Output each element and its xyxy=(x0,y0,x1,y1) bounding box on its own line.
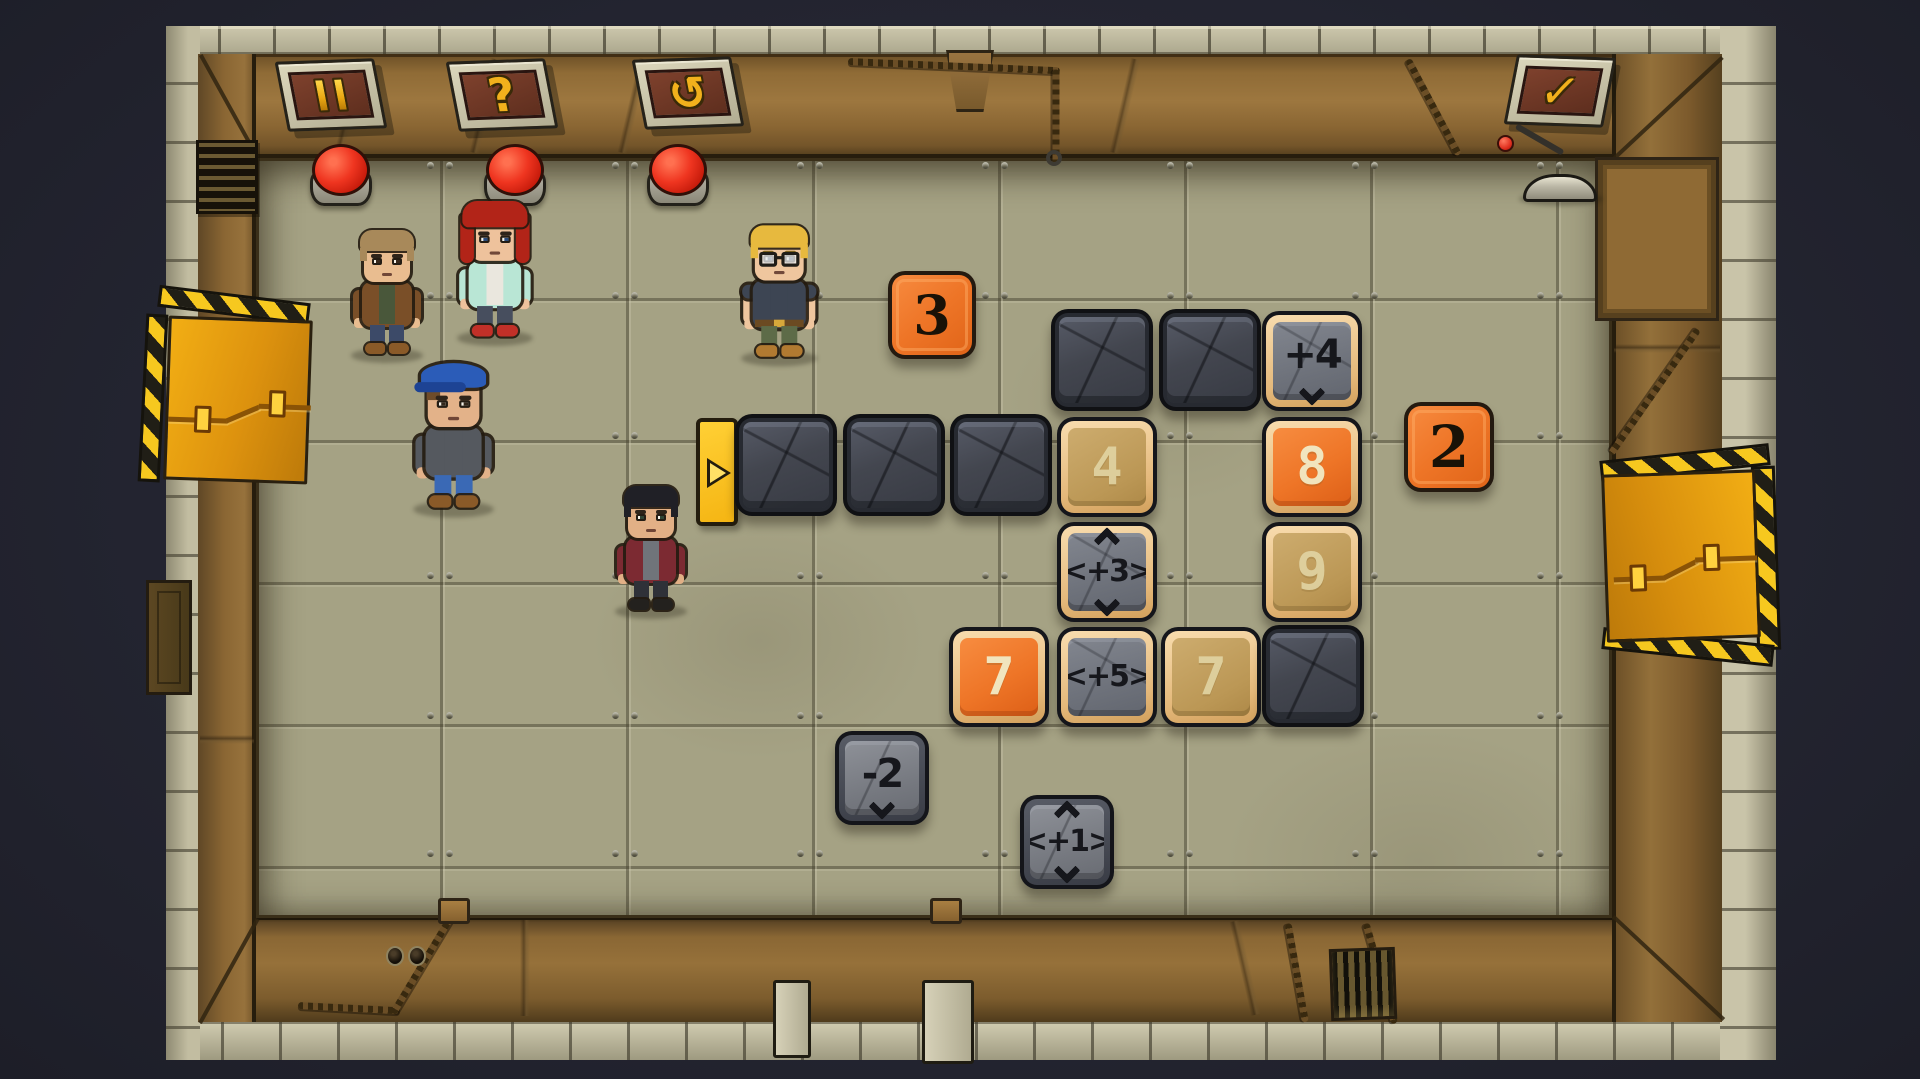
shoe xyxy=(653,599,673,610)
rivet xyxy=(1537,850,1544,857)
sideburn xyxy=(751,244,758,258)
tile-face xyxy=(1167,317,1253,403)
rivet xyxy=(1371,850,1378,857)
rivet xyxy=(1186,850,1193,857)
shirt xyxy=(379,285,395,324)
wall-seam xyxy=(520,920,530,1016)
door-left-panel xyxy=(163,316,313,485)
eye xyxy=(372,258,382,265)
pause-button[interactable] xyxy=(275,58,388,131)
rivet xyxy=(1352,162,1359,169)
rivet xyxy=(1537,292,1544,299)
sideburn xyxy=(624,504,631,517)
rivet xyxy=(446,292,453,299)
rivet xyxy=(612,292,619,299)
mouth xyxy=(448,417,459,420)
red-button-dome xyxy=(649,144,707,196)
tile-face xyxy=(851,422,937,508)
shoe xyxy=(497,325,518,337)
rivet xyxy=(1186,432,1193,439)
door-latch xyxy=(225,405,260,424)
block-2[interactable] xyxy=(1159,309,1261,411)
mouth xyxy=(774,271,785,274)
hair xyxy=(624,486,678,507)
rivet xyxy=(1186,162,1193,169)
rivet xyxy=(427,162,434,169)
rivet xyxy=(1001,292,1008,299)
hair xyxy=(462,201,527,227)
wall-button-3[interactable] xyxy=(645,144,711,208)
eye xyxy=(656,514,666,521)
rivet xyxy=(1556,572,1563,579)
tile-minus2[interactable]: -2 xyxy=(835,731,929,825)
tile-label: 2 xyxy=(1429,418,1469,476)
shoe xyxy=(472,325,493,337)
block-4[interactable] xyxy=(843,414,945,516)
block-3[interactable] xyxy=(735,414,837,516)
door-left xyxy=(142,290,314,492)
right-wall-frame-panel xyxy=(1598,160,1716,318)
rivet xyxy=(1001,572,1008,579)
door-buckle xyxy=(1703,544,1721,572)
rivet xyxy=(631,292,638,299)
rivet xyxy=(612,850,619,857)
tile-face: 9 xyxy=(1273,533,1351,611)
rivet xyxy=(1352,850,1359,857)
rivet xyxy=(1352,292,1359,299)
mouth xyxy=(490,251,501,254)
rivet xyxy=(982,850,989,857)
tile-7-tan[interactable]: 7 xyxy=(1161,627,1261,727)
tile-face: 7 xyxy=(1172,638,1250,716)
wall-seam xyxy=(200,735,254,744)
rivet xyxy=(427,850,434,857)
tile-face: <+5> xyxy=(1068,638,1146,716)
rivet xyxy=(631,850,638,857)
rivet xyxy=(1537,432,1544,439)
rivet xyxy=(1556,850,1563,857)
character-shadow xyxy=(741,350,817,366)
tile-label: <+5> xyxy=(1068,662,1146,692)
man-brown-jacket[interactable] xyxy=(349,224,425,362)
tile-plus3[interactable]: <+3> xyxy=(1057,522,1157,622)
shirt xyxy=(445,430,463,474)
wall-button-1[interactable] xyxy=(308,144,374,208)
woman-red-hair[interactable] xyxy=(455,200,535,345)
rivet xyxy=(797,162,804,169)
wall-pillar xyxy=(773,980,811,1058)
tile-face: 4 xyxy=(1068,428,1146,506)
tile-face xyxy=(1059,317,1145,403)
tile-face xyxy=(958,422,1044,508)
tile-plus5[interactable]: <+5> xyxy=(1057,627,1157,727)
tile-label: 7 xyxy=(1195,651,1226,703)
sideburn xyxy=(407,248,414,261)
shoe xyxy=(429,495,451,507)
rivet xyxy=(446,850,453,857)
rivet xyxy=(816,162,823,169)
bolt-hole xyxy=(386,946,404,966)
shirt xyxy=(643,541,659,580)
tile-label: 4 xyxy=(1091,441,1122,493)
block-1[interactable] xyxy=(1051,309,1153,411)
character-shadow xyxy=(413,501,494,518)
rivet xyxy=(446,712,453,719)
rivet xyxy=(446,162,453,169)
sideburn xyxy=(800,244,807,258)
tile-label: -2 xyxy=(845,754,919,794)
tile-face xyxy=(743,422,829,508)
rivet xyxy=(427,292,434,299)
pause-icon xyxy=(288,70,375,121)
shoe xyxy=(781,345,802,357)
block-5[interactable] xyxy=(950,414,1052,516)
rivet xyxy=(1556,292,1563,299)
glasses-bridge xyxy=(776,256,783,259)
rivet xyxy=(427,572,434,579)
glasses xyxy=(781,252,799,267)
cap-brim xyxy=(414,382,466,392)
sideburn xyxy=(671,504,678,517)
red-button-dome xyxy=(312,144,370,196)
rivet xyxy=(612,432,619,439)
checkmark-glyph: ✓ xyxy=(1536,67,1583,114)
rivet xyxy=(1001,162,1008,169)
lever[interactable] xyxy=(1495,134,1607,208)
wall-post xyxy=(930,898,962,924)
rope-hook xyxy=(1046,150,1062,166)
restart-icon: ↺ xyxy=(645,68,732,119)
tile-face xyxy=(1270,633,1356,719)
shoe xyxy=(629,599,649,610)
tile-label: <+3> xyxy=(1068,557,1146,587)
rivet xyxy=(1001,850,1008,857)
rivet xyxy=(1167,572,1174,579)
rivet xyxy=(816,850,823,857)
rivet xyxy=(1537,712,1544,719)
hair xyxy=(751,225,808,247)
tile-label: 3 xyxy=(913,288,951,342)
block-6[interactable] xyxy=(1262,625,1364,727)
vent-grille-bottom-right xyxy=(1329,947,1397,1021)
man-red-jacket[interactable] xyxy=(613,480,689,618)
rivet xyxy=(982,292,989,299)
tile-face: 7 xyxy=(960,638,1038,716)
rivet xyxy=(982,572,989,579)
shirt xyxy=(487,264,504,305)
character-shadow xyxy=(457,330,533,346)
game-stage: ? ↺ ✓ 32+448<+3>97<+5>7-2<+1> xyxy=(0,0,1920,1079)
shoe xyxy=(389,343,409,354)
eye xyxy=(636,514,646,521)
rivet xyxy=(1371,162,1378,169)
wall-seam xyxy=(1614,344,1720,353)
help-icon: ? xyxy=(459,70,546,121)
mouth xyxy=(382,273,392,276)
rivet xyxy=(1371,432,1378,439)
eye xyxy=(500,236,511,243)
character-shadow xyxy=(351,348,423,363)
door-buckle xyxy=(268,390,286,418)
lever-base xyxy=(1523,174,1597,202)
lever-ball xyxy=(1497,135,1514,152)
character-shadow xyxy=(615,604,687,619)
hair xyxy=(360,230,414,251)
red-button-dome xyxy=(486,144,544,196)
stone-frame-left xyxy=(166,26,200,1060)
eye xyxy=(392,258,402,265)
door-right-panel xyxy=(1601,469,1761,642)
rivet xyxy=(1371,572,1378,579)
tile-face: 8 xyxy=(1273,428,1351,506)
tile-label: +4 xyxy=(1273,335,1351,375)
shoe xyxy=(756,345,777,357)
rivet xyxy=(816,712,823,719)
rivet xyxy=(631,162,638,169)
rivet xyxy=(427,712,434,719)
tile-3[interactable]: 3 xyxy=(888,271,976,359)
door-latch xyxy=(1663,559,1699,581)
rivet xyxy=(631,712,638,719)
rivet xyxy=(1167,850,1174,857)
tile-face: 3 xyxy=(896,279,968,351)
left-wall-hatch xyxy=(146,580,192,695)
wall-pillar xyxy=(922,980,974,1064)
tile-plus4[interactable]: +4 xyxy=(1262,311,1362,411)
shoe xyxy=(456,495,478,507)
door-buckle xyxy=(1629,564,1647,592)
tile-label: 7 xyxy=(983,651,1014,703)
restart-arrow-glyph: ↺ xyxy=(664,69,711,116)
eye xyxy=(479,236,490,243)
tile-2[interactable]: 2 xyxy=(1404,402,1494,492)
rivet xyxy=(1371,712,1378,719)
rivet xyxy=(612,162,619,169)
rivet xyxy=(1167,162,1174,169)
help-button[interactable]: ? xyxy=(446,58,559,131)
rivet xyxy=(631,432,638,439)
shoe xyxy=(365,343,385,354)
rivet xyxy=(1371,292,1378,299)
tile-plus1[interactable]: <+1> xyxy=(1020,795,1114,889)
sideburn xyxy=(360,248,367,261)
rivet xyxy=(612,712,619,719)
rivet xyxy=(1167,432,1174,439)
door-right xyxy=(1596,450,1780,666)
rivet xyxy=(1167,292,1174,299)
rivet xyxy=(1186,572,1193,579)
vent-grille-top-left xyxy=(196,140,258,214)
tile-9[interactable]: 9 xyxy=(1262,522,1362,622)
tile-label: <+1> xyxy=(1030,827,1104,857)
rivet xyxy=(797,712,804,719)
confirm-button[interactable]: ✓ xyxy=(1504,54,1617,127)
eye xyxy=(437,400,448,408)
rivet xyxy=(1186,292,1193,299)
eye xyxy=(459,400,470,408)
glasses xyxy=(759,252,777,267)
wall-post xyxy=(438,898,470,924)
tile-label: 9 xyxy=(1296,546,1327,598)
rivet xyxy=(1556,432,1563,439)
door-buckle xyxy=(194,405,212,433)
restart-button[interactable]: ↺ xyxy=(632,56,745,129)
tile-4[interactable]: 4 xyxy=(1057,417,1157,517)
mouth xyxy=(646,529,656,532)
man-blonde-glasses[interactable] xyxy=(739,219,820,365)
confirm-icon: ✓ xyxy=(1517,66,1604,117)
spawn-marker xyxy=(696,418,738,526)
tile-7-orange[interactable]: 7 xyxy=(949,627,1049,727)
rivet xyxy=(816,572,823,579)
tile-label: 8 xyxy=(1296,441,1327,493)
question-mark-glyph: ? xyxy=(484,72,519,119)
tile-8[interactable]: 8 xyxy=(1262,417,1362,517)
bolt-hole xyxy=(408,946,426,966)
tile-face: 2 xyxy=(1412,410,1486,484)
rivet xyxy=(446,572,453,579)
rivet xyxy=(982,162,989,169)
man-blue-cap[interactable] xyxy=(411,362,496,517)
rivet xyxy=(1556,712,1563,719)
rivet xyxy=(797,572,804,579)
rivet xyxy=(797,850,804,857)
wall-button-2[interactable] xyxy=(482,144,548,208)
rivet xyxy=(1537,572,1544,579)
